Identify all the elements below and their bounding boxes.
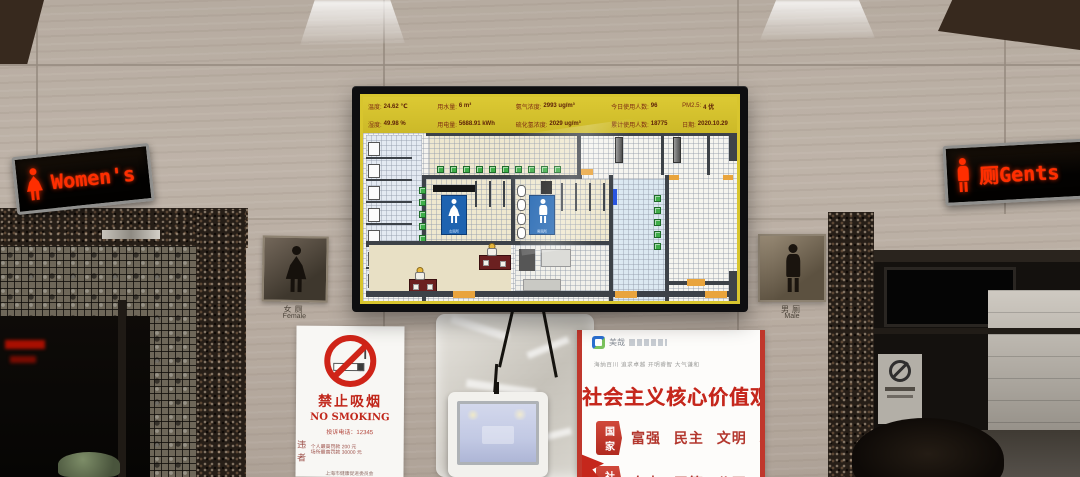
dashboard-header: 温度:24.62 ℃ 用水量:6 m³ 氨气浓度:2993 ug/m³ 今日使用… xyxy=(363,97,737,134)
no-smoking-title-en: NO SMOKING xyxy=(296,412,404,424)
light-reflection xyxy=(760,0,875,44)
poster-logo-text: 美哉 xyxy=(609,337,625,348)
plan-wall xyxy=(661,133,664,175)
dash-temperature: 温度:24.62 ℃ xyxy=(363,102,432,111)
screen-graphic xyxy=(512,409,528,420)
plan-wall xyxy=(366,291,737,297)
male-door-plaque: 男厕 Male xyxy=(758,234,826,324)
plan-wall xyxy=(729,133,737,161)
male-figure-icon xyxy=(778,244,808,292)
plan-wall xyxy=(489,181,491,207)
office-desk xyxy=(479,255,511,270)
plaque-label-en: Female xyxy=(261,312,327,320)
poster-footer: 上海市健康促进委员会 xyxy=(317,470,382,477)
tablet-bezel xyxy=(457,401,539,465)
dash-humidity: 湿度:49.98 % xyxy=(363,120,432,129)
light-reflection xyxy=(300,0,405,50)
door-marker xyxy=(687,279,705,286)
screen-graphic xyxy=(482,426,514,444)
tablet-screen[interactable] xyxy=(460,404,536,462)
door-marker xyxy=(615,291,637,298)
row-values: 富强 民主 文明 和谐 xyxy=(631,428,765,448)
door-marker xyxy=(723,175,733,180)
pillar xyxy=(673,137,681,163)
row-badge: 国家 xyxy=(596,421,622,455)
screen-glare xyxy=(505,119,650,256)
hotline-text: 投诉电话：12345 xyxy=(296,427,404,437)
plaque-face xyxy=(262,235,329,302)
row-badge: 社会 xyxy=(596,466,622,477)
dash-electricity: 用电量:5688.91 kWh xyxy=(432,120,511,129)
interior-no-smoking-sign xyxy=(878,354,922,424)
poster-title: 社会主义核心价值观 xyxy=(582,381,760,410)
gents-led-sign: 厕Gents xyxy=(943,138,1080,206)
no-smoking-poster: 禁止吸烟 NO SMOKING 投诉电话：12345 违者 个人最高罚款 200… xyxy=(295,326,404,477)
plaque-face xyxy=(758,234,826,302)
interior-tiled-wall xyxy=(988,290,1080,450)
sign-text-bar xyxy=(885,387,915,391)
plan-wall xyxy=(475,181,477,207)
dash-water: 用水量:6 m³ xyxy=(432,102,511,111)
fine-lines: 个人最高罚款 200 元场所最高罚款 30000 元 xyxy=(311,444,362,459)
planter xyxy=(58,452,120,477)
row-values: 自由 平等 公正 法治 xyxy=(631,473,765,477)
tv-screen: 温度:24.62 ℃ 用水量:6 m³ 氨气浓度:2993 ug/m³ 今日使用… xyxy=(360,94,740,304)
interior-led-glow xyxy=(5,340,45,349)
dash-today-visitors: 今日使用人数:96 xyxy=(606,102,677,111)
core-values-poster: 美哉 海纳百川 追求卓越 开明睿智 大气谦和 上海城市精神 社会主义核心价值观 … xyxy=(577,330,765,477)
poster-logo-icon xyxy=(592,336,605,349)
dash-date: 日期:2020.10.29 xyxy=(677,120,737,129)
control-tablet xyxy=(448,392,548,477)
no-smoking-title-zh: 禁止吸烟 xyxy=(296,391,404,412)
interior-led-glow xyxy=(10,356,36,363)
plan-wall xyxy=(707,133,710,175)
no-smoking-symbol-icon xyxy=(324,335,376,387)
tile-grout xyxy=(0,64,1080,66)
logo-fine-print xyxy=(629,339,667,346)
screen-graphic xyxy=(466,410,480,420)
door-frame xyxy=(118,300,126,477)
granite-pilaster xyxy=(196,210,246,477)
led-text: 厕Gents xyxy=(978,155,1060,188)
fine-prefix: 违者 xyxy=(296,438,308,464)
wall-tv: 温度:24.62 ℃ 用水量:6 m³ 氨气浓度:2993 ug/m³ 今日使用… xyxy=(352,86,748,312)
city-spirit-tagline: 海纳百川 追求卓越 开明睿智 大气谦和 xyxy=(594,360,700,368)
restroom-lobby-photo: Women's 厕Gents 女厕 Female 男厕 Male xyxy=(0,0,1080,477)
interior-sill xyxy=(874,328,1080,334)
door-marker xyxy=(453,291,475,298)
door-marker xyxy=(705,291,727,298)
person-marker xyxy=(487,243,497,255)
dash-ammonia: 氨气浓度:2993 ug/m³ xyxy=(511,102,606,111)
right-wall-sensors xyxy=(654,195,661,250)
female-figure-icon xyxy=(446,199,462,223)
womens-room-sign: 女厕所 xyxy=(441,195,467,235)
plan-wall xyxy=(503,181,505,207)
door-marker xyxy=(669,175,679,180)
info-bar xyxy=(433,185,477,192)
plaque-label-en: Male xyxy=(758,313,826,320)
female-door-plaque: 女厕 Female xyxy=(261,235,329,324)
tablet-antenna xyxy=(494,382,499,394)
dash-pm25: PM2.5:4 优 xyxy=(677,102,737,111)
female-figure-icon xyxy=(23,167,46,201)
metal-plate xyxy=(102,230,160,239)
sign-label: 女厕所 xyxy=(449,229,459,234)
person-marker xyxy=(415,267,425,279)
led-text: Women's xyxy=(50,162,136,195)
male-figure-icon xyxy=(953,158,973,193)
female-figure-icon xyxy=(279,246,314,293)
sign-text-bar xyxy=(887,395,913,398)
